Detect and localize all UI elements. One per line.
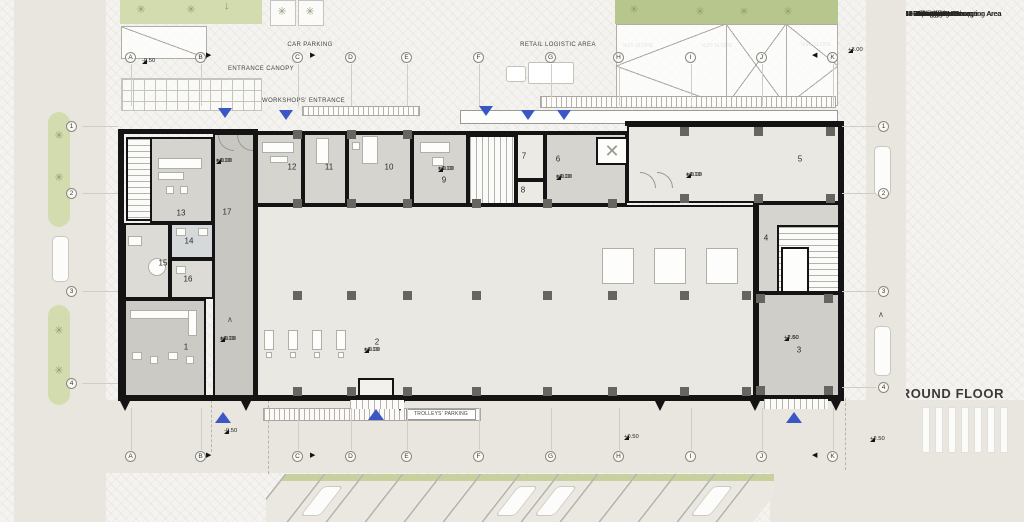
entrance-arrow-down <box>479 106 493 116</box>
floor-elevation-mark: +0.10± 0.00 <box>364 347 398 360</box>
room-number: 12 <box>288 163 297 172</box>
structural-column <box>293 291 302 300</box>
grid-leader-line <box>298 408 299 450</box>
entrance-canopy-label: ENTRANCE CANOPY <box>228 66 294 72</box>
level-value: -0.50 <box>142 58 155 64</box>
furniture <box>432 157 444 166</box>
structural-column <box>403 387 412 396</box>
furniture <box>188 310 197 336</box>
entrance-arrow-up <box>786 412 802 423</box>
grid-leader-line <box>407 64 408 106</box>
grid-leader-line <box>351 64 352 106</box>
grid-leader-line <box>351 408 352 450</box>
wall-wedge <box>653 397 667 411</box>
structural-column <box>293 387 302 396</box>
road-arrow-left-icon: ◀ <box>812 451 820 461</box>
road-arrow-left-icon: ◀ <box>812 51 820 61</box>
tree-icon: ✳ <box>185 4 197 16</box>
wall <box>838 121 844 401</box>
road-arrow-right-icon: ▶ <box>310 451 318 461</box>
shelf-unit <box>447 244 497 250</box>
structural-column <box>472 387 481 396</box>
tree-icon: ✳ <box>738 6 750 18</box>
structural-column <box>293 130 302 139</box>
furniture <box>168 352 178 360</box>
retail-logistic-label: RETAIL LOGISTIC AREA <box>506 42 610 48</box>
dock-edge-strip <box>540 96 836 108</box>
grid-leader-line <box>131 408 132 450</box>
room-2-hall-zone <box>256 205 757 397</box>
grid-letter-top: D <box>345 52 356 63</box>
north-chevron-icon: ∧ <box>227 315 237 325</box>
furniture <box>166 186 174 194</box>
furniture <box>362 136 378 164</box>
grid-leader-line <box>619 64 620 106</box>
room-number: 15 <box>159 259 168 268</box>
structural-column <box>472 291 481 300</box>
grid-letter-bottom: J <box>756 451 767 462</box>
grid-leader-line <box>82 291 118 292</box>
room-number: 16 <box>184 275 193 284</box>
grid-letter-bottom: H <box>613 451 624 462</box>
room-4-elevator <box>781 247 809 293</box>
tree-icon: ✳ <box>53 172 65 184</box>
grid-letter-bottom: E <box>401 451 412 462</box>
tree-icon: ✳ <box>53 325 65 337</box>
freezer-island <box>654 248 686 284</box>
crosswalk-bar <box>961 407 969 453</box>
shelf-unit <box>722 313 729 375</box>
grid-leader-line <box>551 64 552 106</box>
furniture <box>352 142 360 150</box>
retail-elevation-mark: +2.60+2.50 <box>784 335 818 348</box>
parking-slot-green-band <box>749 474 774 481</box>
planting-island <box>48 305 70 405</box>
checkout-counter <box>336 330 346 350</box>
crosswalk-bar <box>922 407 930 453</box>
ramp-line <box>726 24 786 106</box>
grid-letter-top: K <box>827 52 838 63</box>
road-southeast <box>770 473 1024 522</box>
structural-column <box>472 199 481 208</box>
structural-column <box>543 199 552 208</box>
room-number: 11 <box>325 163 333 172</box>
room-number: 2 <box>375 338 379 347</box>
shaft-x-icon: ✕ <box>600 140 624 162</box>
room-number: 17 <box>223 208 232 217</box>
room-number: 13 <box>177 209 186 218</box>
wall <box>254 131 629 135</box>
wall <box>118 129 124 401</box>
furniture <box>128 236 142 246</box>
structural-column <box>680 387 689 396</box>
site-elevation-mark: -0.50 <box>224 428 258 441</box>
grid-leader-line <box>833 408 834 450</box>
structural-column <box>403 130 412 139</box>
furniture <box>186 356 194 364</box>
wall-wedge <box>748 397 762 411</box>
grid-number-left: 2 <box>66 188 77 199</box>
entrance-arrow-up <box>368 409 384 420</box>
freezer-island <box>706 248 738 284</box>
shelf-unit <box>350 220 357 284</box>
shelf-unit <box>376 220 383 284</box>
grid-leader-line <box>407 408 408 450</box>
grid-number-right: 2 <box>878 188 889 199</box>
grid-leader-line <box>298 64 299 106</box>
grid-letter-top: G <box>545 52 556 63</box>
room-number: 4 <box>764 234 768 243</box>
road-dashed-line <box>845 398 846 470</box>
entrance-vestibule <box>358 378 394 397</box>
furniture <box>420 142 450 153</box>
grid-letter-top: E <box>401 52 412 63</box>
shelf-unit <box>447 266 497 272</box>
room-number: 6 <box>556 155 560 164</box>
level-value: -0.50 <box>224 428 237 434</box>
grid-number-left: 3 <box>66 286 77 297</box>
road-dashed-line <box>211 400 212 452</box>
floor-elevation-mark: +0.10± 0.00 <box>686 172 720 185</box>
shelf-unit <box>298 220 305 284</box>
structural-column <box>347 130 356 139</box>
structural-column <box>754 194 763 203</box>
checkout-stand <box>314 352 320 358</box>
grid-number-left: 1 <box>66 121 77 132</box>
entrance-arrow-down <box>218 108 232 118</box>
level-value: +2.50 <box>784 335 799 341</box>
grid-number-right: 3 <box>878 286 889 297</box>
grid-leader-line <box>619 408 620 450</box>
road-arrow-right-icon: ▶ <box>206 51 214 61</box>
grid-letter-top: H <box>613 52 624 63</box>
structural-column <box>347 291 356 300</box>
site-elevation-mark: +2.50 <box>870 436 904 449</box>
grid-leader-line <box>479 408 480 450</box>
ramp-divider <box>726 24 727 106</box>
parked-car <box>874 326 891 376</box>
room-5-zone <box>627 125 840 203</box>
level-value: ± 0.00 <box>220 336 236 342</box>
structural-column <box>824 386 833 395</box>
level-value: +3.00 <box>848 47 863 53</box>
structural-column <box>608 387 617 396</box>
grid-leader-line <box>82 383 118 384</box>
structural-column <box>742 291 751 300</box>
grid-letter-bottom: D <box>345 451 356 462</box>
furniture <box>150 356 158 364</box>
grid-letter-bottom: F <box>473 451 484 462</box>
grid-letter-bottom: C <box>292 451 303 462</box>
structural-column <box>403 199 412 208</box>
floor-elevation-mark: +0.10± 0.00 <box>556 174 590 187</box>
grid-leader-line <box>842 291 876 292</box>
stair-villa <box>126 137 152 221</box>
planting-strip-northeast <box>615 0 838 24</box>
wall <box>120 129 258 134</box>
room-7-zone <box>516 133 545 180</box>
crosswalk-bar <box>948 407 956 453</box>
grid-leader-line <box>842 126 876 127</box>
crosswalk-bar <box>987 407 995 453</box>
grid-leader-line <box>762 64 763 106</box>
furniture <box>176 266 186 274</box>
grid-leader-line <box>842 387 876 388</box>
tree-icon: ✳ <box>53 130 65 142</box>
tree-icon: ✳ <box>276 6 288 18</box>
structural-column <box>826 127 835 136</box>
north-chevron-icon: ∧ <box>878 310 888 320</box>
structural-column <box>756 386 765 395</box>
retail-steps <box>764 399 828 409</box>
shelf-unit <box>428 220 435 284</box>
truck-cab <box>506 66 526 82</box>
furniture <box>132 352 142 360</box>
ground-floor-site-plan: CAR PARKING RETAIL LOGISTIC AREA ENTRANC… <box>0 0 1024 522</box>
room-number: 1 <box>184 343 188 352</box>
shelf-unit <box>324 220 331 284</box>
entrance-arrow-down <box>279 110 293 120</box>
grid-number-right: 1 <box>878 121 889 132</box>
down-arrow-icon: ↓ <box>224 0 236 14</box>
grid-letter-top: C <box>292 52 303 63</box>
structural-column <box>293 199 302 208</box>
grid-leader-line <box>833 64 834 106</box>
ramp-line <box>616 24 726 66</box>
structural-column <box>608 199 617 208</box>
structural-column <box>403 291 412 300</box>
furniture <box>158 172 184 180</box>
furniture <box>158 158 202 169</box>
wall-wedge <box>118 397 132 411</box>
road-arrow-right-icon: ▶ <box>310 51 318 61</box>
entrance-canopy-grid <box>121 78 262 111</box>
structural-column <box>680 127 689 136</box>
crosswalk-bar <box>974 407 982 453</box>
wall <box>253 133 257 397</box>
tree-icon: ✳ <box>53 365 65 377</box>
level-value: ± 0.00 <box>556 174 572 180</box>
grid-letter-top: J <box>756 52 767 63</box>
shelf-unit <box>272 220 279 284</box>
grid-leader-line <box>131 64 132 106</box>
structural-column <box>742 387 751 396</box>
grid-letter-bottom: K <box>827 451 838 462</box>
grid-letter-top: F <box>473 52 484 63</box>
shelf-unit <box>447 222 497 228</box>
grid-letter-bottom: I <box>685 451 696 462</box>
room-number: 7 <box>522 152 526 161</box>
grid-leader-line <box>842 193 876 194</box>
structural-column <box>680 291 689 300</box>
room-number: 10 <box>385 163 394 172</box>
structural-column <box>347 199 356 208</box>
structural-column <box>756 294 765 303</box>
floor-elevation-mark: +0.10± 0.00 <box>438 166 472 179</box>
grid-leader-line <box>82 126 118 127</box>
entrance-arrow-down <box>521 110 535 120</box>
ramp-divider <box>786 24 787 106</box>
structural-column <box>680 194 689 203</box>
room-17-passage-zone <box>213 133 255 397</box>
entrance-arrow-down <box>557 110 571 120</box>
grid-leader-line <box>479 64 480 106</box>
tree-icon: ✳ <box>782 6 794 18</box>
shelf-unit <box>700 313 707 375</box>
room-number: 5 <box>798 155 802 164</box>
floor-elevation-mark: +0.10± 0.00 <box>220 336 254 349</box>
workshops-entrance-label: WORKSHOPS' ENTRANCE <box>262 98 345 104</box>
grid-letter-bottom: A <box>125 451 136 462</box>
wall-wedge <box>829 397 843 411</box>
angled-parking-row <box>266 474 774 522</box>
grid-number-left: 4 <box>66 378 77 389</box>
room-number: 8 <box>521 186 525 195</box>
grid-letter-top: I <box>685 52 696 63</box>
structural-column <box>543 387 552 396</box>
grid-letter-bottom: G <box>545 451 556 462</box>
shelf-unit <box>471 313 478 375</box>
checkout-stand <box>338 352 344 358</box>
shelf-unit <box>449 313 456 375</box>
entrance-steps <box>350 400 404 409</box>
structural-column <box>754 127 763 136</box>
grid-letter-top: B <box>195 52 206 63</box>
trolleys-parking-label: TROLLEYS' PARKING <box>406 409 476 420</box>
grid-leader-line <box>201 64 202 106</box>
furniture <box>262 142 294 153</box>
shelf-unit <box>402 220 409 284</box>
structural-column <box>347 387 356 396</box>
checkout-stand <box>290 352 296 358</box>
furniture <box>180 186 188 194</box>
freezer-island <box>602 248 634 284</box>
level-value: ± 0.00 <box>686 172 702 178</box>
car-parking-label: CAR PARKING <box>258 42 362 48</box>
grid-letter-bottom: B <box>195 451 206 462</box>
checkout-stand <box>266 352 272 358</box>
tree-icon: ✳ <box>135 4 147 16</box>
grid-leader-line <box>762 408 763 450</box>
structural-column <box>824 294 833 303</box>
room-number: 14 <box>185 237 194 246</box>
dock-edge-strip <box>302 106 420 116</box>
main-staircase <box>468 135 516 205</box>
shelf-unit <box>744 313 751 375</box>
road-arrow-right-icon: ▶ <box>206 451 214 461</box>
grid-letter-top: A <box>125 52 136 63</box>
tree-icon: ✳ <box>304 6 316 18</box>
grid-leader-line <box>691 64 692 106</box>
level-value: ± 0.00 <box>364 347 380 353</box>
tree-icon: ✳ <box>628 4 640 16</box>
level-value: ± 0.00 <box>216 158 232 164</box>
grid-leader-line <box>691 408 692 450</box>
floor-title: GROUND FLOOR <box>890 386 1015 401</box>
site-elevation-mark: -0.50 <box>142 58 176 71</box>
structural-column <box>826 194 835 203</box>
grid-number-right: 4 <box>878 382 889 393</box>
site-elevation-mark: +0.50 <box>624 434 658 447</box>
level-value: +0.50 <box>624 434 639 440</box>
checkout-counter <box>288 330 298 350</box>
structural-column <box>608 291 617 300</box>
furniture <box>198 228 208 236</box>
wall-wedge <box>239 397 253 411</box>
furniture <box>316 138 329 164</box>
crosswalk-bar <box>935 407 943 453</box>
level-value: ± 0.00 <box>438 166 454 172</box>
shelf-unit <box>630 220 748 226</box>
crosswalk-bar <box>1000 407 1008 453</box>
site-elevation-mark: +3.00 <box>848 47 882 60</box>
furniture <box>130 310 194 319</box>
structural-column <box>543 291 552 300</box>
level-value: +2.50 <box>870 436 885 442</box>
checkout-counter <box>264 330 274 350</box>
furniture <box>270 156 288 163</box>
floor-elevation-mark: +0.10± 0.00 <box>216 158 250 171</box>
grid-leader-line <box>201 408 202 450</box>
legend-item: 17-Pedestrian Passage <box>905 10 978 19</box>
checkout-counter <box>312 330 322 350</box>
tree-icon: ✳ <box>694 6 706 18</box>
entrance-arrow-up <box>215 412 231 423</box>
shelf-unit <box>493 313 500 375</box>
grid-leader-line <box>82 193 118 194</box>
furniture <box>176 228 186 236</box>
parked-car <box>52 236 69 282</box>
wall <box>625 121 842 126</box>
grid-leader-line <box>551 408 552 450</box>
